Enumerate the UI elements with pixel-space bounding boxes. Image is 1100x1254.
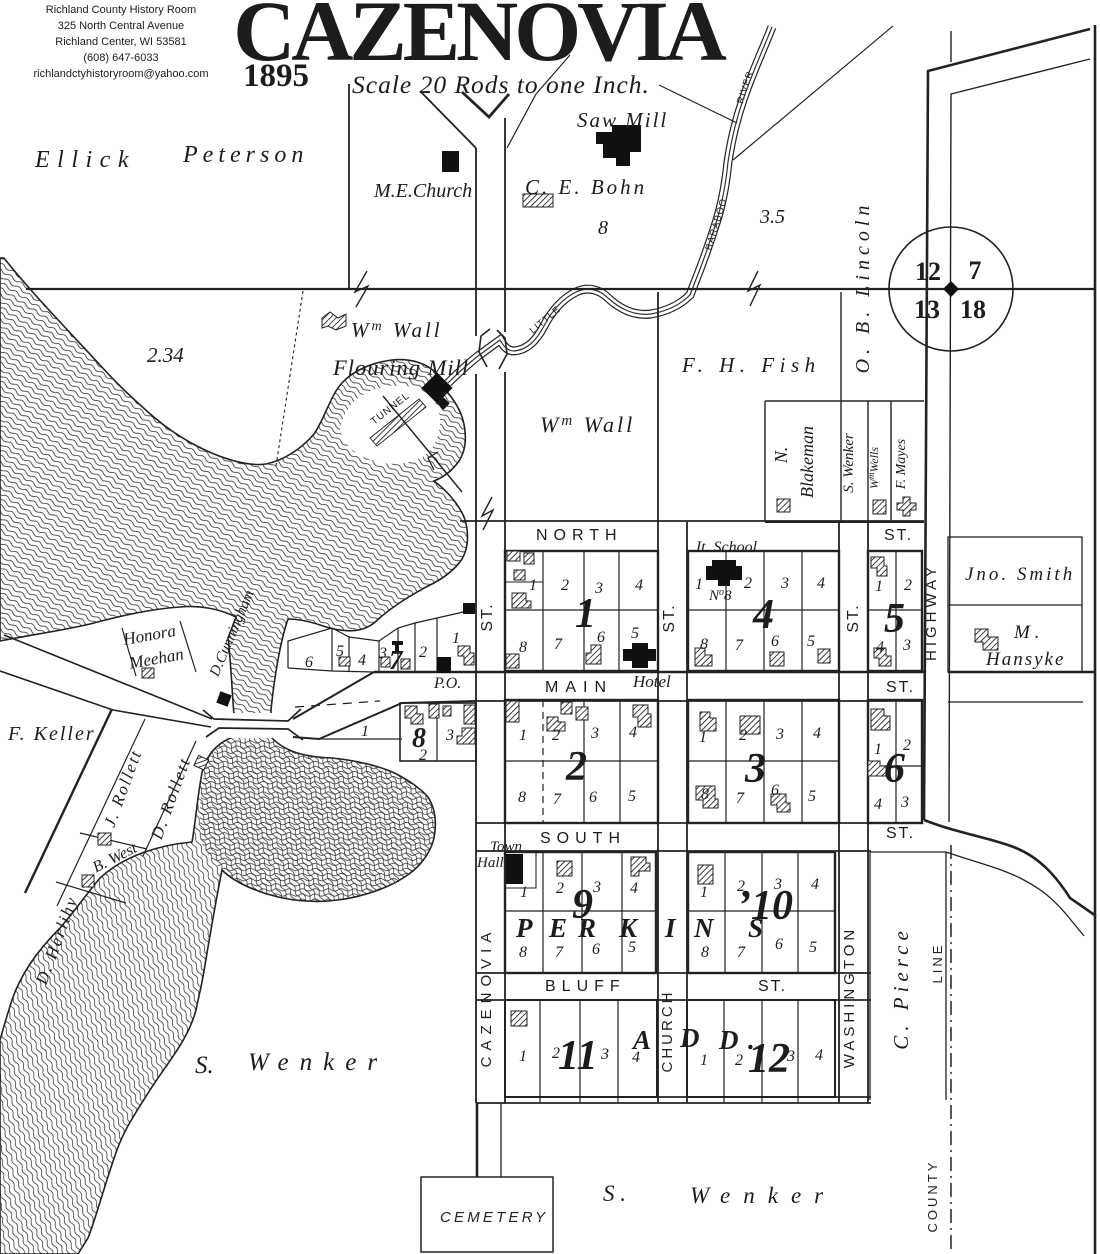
svg-text:12: 12	[915, 257, 941, 286]
svg-text:6: 6	[884, 746, 905, 792]
svg-text:richlandctyhistoryroom@yahoo.c: richlandctyhistoryroom@yahoo.com	[33, 68, 208, 80]
svg-text:F. Mayes: F. Mayes	[894, 438, 909, 490]
svg-text:ST.: ST.	[886, 679, 915, 696]
svg-text:1: 1	[519, 727, 527, 744]
svg-text:3: 3	[744, 746, 766, 792]
svg-text:3: 3	[780, 575, 789, 592]
svg-text:8: 8	[701, 944, 709, 961]
svg-text:2: 2	[735, 1052, 743, 1069]
svg-text:6: 6	[589, 789, 597, 806]
svg-text:C. E. Bohn: C. E. Bohn	[525, 175, 647, 199]
svg-text:CHURCH: CHURCH	[659, 990, 676, 1073]
svg-text:325 North Central Avenue: 325 North Central Avenue	[58, 20, 184, 32]
svg-text:SOUTH: SOUTH	[540, 830, 626, 847]
svg-text:4: 4	[752, 592, 774, 638]
svg-text:R: R	[577, 913, 596, 943]
svg-text:1: 1	[699, 729, 707, 746]
svg-text:1: 1	[874, 741, 882, 758]
svg-text:Hotel: Hotel	[632, 672, 671, 691]
svg-text:Jt. School: Jt. School	[694, 539, 758, 556]
svg-text:S: S	[748, 913, 763, 943]
svg-text:7: 7	[735, 637, 744, 654]
svg-text:7: 7	[554, 636, 563, 653]
svg-text:2: 2	[565, 744, 587, 790]
svg-text:3.5: 3.5	[759, 206, 785, 228]
svg-text:Blakeman: Blakeman	[797, 426, 817, 498]
svg-text:CEMETERY: CEMETERY	[440, 1209, 548, 1226]
svg-text:5: 5	[809, 939, 817, 956]
svg-text:2: 2	[737, 878, 745, 895]
svg-text:C. Pierce: C. Pierce	[889, 926, 913, 1050]
svg-text:8: 8	[701, 786, 709, 803]
svg-text:18: 18	[960, 295, 986, 324]
svg-text:6: 6	[592, 941, 600, 958]
svg-text:D: D	[718, 1025, 739, 1055]
svg-text:4: 4	[876, 639, 884, 656]
svg-text:3: 3	[786, 1048, 795, 1065]
svg-text:3: 3	[773, 876, 782, 893]
svg-text:3: 3	[900, 794, 909, 811]
svg-text:P: P	[515, 913, 533, 943]
svg-text:Town: Town	[490, 839, 522, 855]
svg-text:Richland Center, WI 53581: Richland Center, WI 53581	[55, 36, 186, 48]
svg-text:8: 8	[519, 639, 527, 656]
svg-text:WmWells: WmWells	[866, 447, 881, 489]
svg-text:Wenker: Wenker	[248, 1049, 388, 1076]
svg-text:Hall: Hall	[476, 855, 504, 871]
svg-text:Wm Wall: Wm Wall	[540, 412, 635, 437]
svg-text:2: 2	[903, 737, 911, 754]
svg-text:4: 4	[630, 880, 638, 897]
svg-text:Peterson: Peterson	[182, 142, 308, 168]
svg-text:3: 3	[590, 725, 599, 742]
svg-text:Jno. Smith: Jno. Smith	[965, 564, 1075, 585]
svg-text:2: 2	[419, 644, 427, 661]
svg-text:3: 3	[592, 879, 601, 896]
svg-text:2: 2	[744, 575, 752, 592]
svg-text:8: 8	[700, 636, 708, 653]
svg-text:N.: N.	[771, 447, 791, 465]
svg-text:8: 8	[518, 789, 526, 806]
svg-text:1895: 1895	[243, 58, 309, 94]
svg-text:5: 5	[631, 625, 639, 642]
svg-text:I: I	[664, 913, 677, 943]
svg-text:ST.: ST.	[661, 603, 678, 632]
svg-text:4: 4	[813, 725, 821, 742]
svg-text:5: 5	[336, 643, 344, 660]
svg-text:4: 4	[629, 724, 637, 741]
svg-text:P.O.: P.O.	[433, 675, 461, 692]
svg-text:ST.: ST.	[758, 978, 787, 995]
svg-text:1: 1	[529, 577, 537, 594]
svg-text:6: 6	[775, 936, 783, 953]
svg-text:ST.: ST.	[479, 602, 496, 631]
svg-text:8: 8	[598, 217, 608, 239]
svg-text:4: 4	[817, 575, 825, 592]
svg-text:BLUFF: BLUFF	[545, 978, 626, 995]
svg-text:4: 4	[811, 876, 819, 893]
svg-text:7: 7	[969, 256, 982, 285]
svg-text:4: 4	[874, 796, 882, 813]
svg-text:’10: ’10	[737, 883, 793, 929]
svg-text:2: 2	[904, 577, 912, 594]
svg-text:Flouring Mill: Flouring Mill	[332, 355, 469, 380]
svg-text:M .: M .	[1013, 622, 1039, 643]
svg-text:F. H. Fish: F. H. Fish	[681, 353, 821, 377]
svg-text:7: 7	[736, 790, 745, 807]
svg-text:7: 7	[389, 645, 404, 675]
svg-text:S. Wenker: S. Wenker	[841, 433, 857, 493]
svg-text:3: 3	[902, 637, 911, 654]
svg-text:Wm Wall: Wm Wall	[351, 318, 443, 342]
svg-text:1: 1	[575, 591, 596, 637]
svg-text:8: 8	[519, 944, 527, 961]
svg-text:6: 6	[771, 782, 779, 799]
svg-text:7: 7	[555, 944, 564, 961]
svg-text:F. Keller: F. Keller	[7, 723, 96, 745]
svg-text:7: 7	[737, 944, 746, 961]
svg-text:Scale 20 Rods to one Inch.: Scale 20 Rods to one Inch.	[352, 70, 650, 99]
svg-text:LINE: LINE	[930, 943, 945, 984]
svg-text:D: D	[679, 1023, 700, 1053]
svg-text:S.: S.	[195, 1052, 214, 1079]
svg-text:3: 3	[594, 580, 603, 597]
svg-text:2: 2	[419, 747, 427, 764]
svg-text:.: .	[748, 1025, 755, 1055]
svg-text:5: 5	[808, 788, 816, 805]
svg-text:S .: S .	[603, 1181, 626, 1206]
svg-text:1: 1	[875, 578, 883, 595]
svg-text:2: 2	[561, 577, 569, 594]
svg-text:O. B. Lincoln: O. B. Lincoln	[852, 201, 874, 374]
svg-text:MAIN: MAIN	[545, 679, 613, 696]
svg-text:4: 4	[358, 652, 366, 669]
svg-text:1: 1	[695, 576, 703, 593]
svg-text:3: 3	[600, 1046, 609, 1063]
svg-text:ST.: ST.	[884, 527, 913, 544]
svg-text:Ellick: Ellick	[34, 147, 136, 173]
svg-text:HIGHWAY: HIGHWAY	[923, 563, 940, 661]
svg-text:7: 7	[553, 791, 562, 808]
svg-text:11: 11	[558, 1033, 598, 1079]
svg-text:1: 1	[700, 884, 708, 901]
svg-text:1: 1	[361, 723, 369, 740]
svg-text:5: 5	[628, 939, 636, 956]
svg-text:3: 3	[445, 727, 454, 744]
svg-text:2: 2	[552, 727, 560, 744]
svg-text:6: 6	[771, 633, 779, 650]
svg-text:5: 5	[628, 788, 636, 805]
svg-text:E: E	[548, 913, 567, 943]
svg-text:ST.: ST.	[845, 603, 862, 632]
svg-text:4: 4	[635, 577, 643, 594]
svg-text:5: 5	[884, 596, 905, 642]
svg-text:3: 3	[775, 726, 784, 743]
svg-text:WASHINGTON: WASHINGTON	[841, 926, 858, 1069]
svg-text:6: 6	[305, 654, 313, 671]
svg-text:4: 4	[632, 1049, 640, 1066]
svg-text:NORTH: NORTH	[536, 527, 623, 544]
svg-text:6: 6	[597, 629, 605, 646]
svg-text:1: 1	[520, 884, 528, 901]
svg-text:Saw Mill: Saw Mill	[577, 108, 668, 132]
svg-text:4: 4	[815, 1047, 823, 1064]
svg-text:CAZENOVIA: CAZENOVIA	[478, 927, 495, 1068]
svg-text:2.34: 2.34	[147, 343, 184, 367]
svg-text:M.E.Church: M.E.Church	[373, 180, 472, 202]
svg-text:Richland County History Room: Richland County History Room	[46, 4, 196, 16]
svg-text:2: 2	[556, 880, 564, 897]
svg-text:2: 2	[739, 727, 747, 744]
svg-text:ST.: ST.	[886, 825, 915, 842]
svg-text:5: 5	[807, 633, 815, 650]
svg-text:1: 1	[519, 1048, 527, 1065]
svg-text:2: 2	[552, 1045, 560, 1062]
svg-text:1: 1	[700, 1052, 708, 1069]
svg-text:Wenker: Wenker	[690, 1183, 836, 1208]
svg-text:COUNTY: COUNTY	[925, 1160, 940, 1233]
svg-text:1: 1	[452, 630, 460, 647]
svg-text:N: N	[693, 913, 715, 943]
svg-text:13: 13	[914, 295, 940, 324]
svg-text:(608) 647-6033: (608) 647-6033	[83, 52, 158, 64]
svg-text:Hansyke: Hansyke	[985, 649, 1065, 670]
svg-text:3: 3	[378, 645, 387, 662]
